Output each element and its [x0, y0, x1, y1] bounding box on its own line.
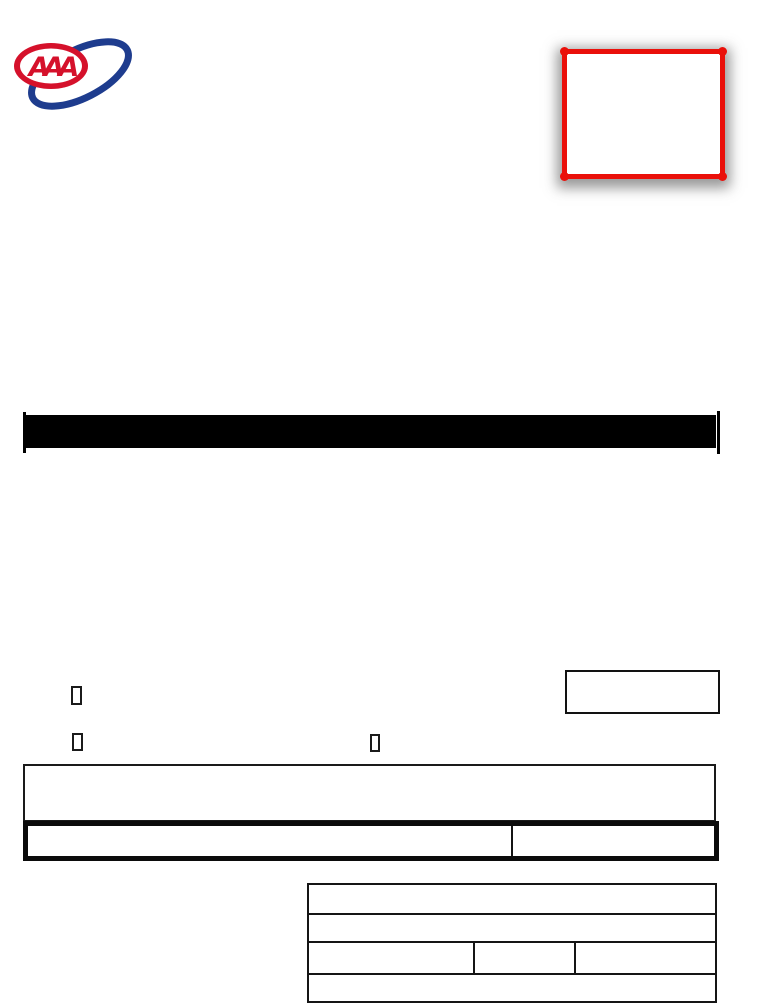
summary-cell-right[interactable] [513, 826, 714, 856]
table-row [309, 943, 715, 975]
notes-box-value [25, 766, 714, 820]
table-row [309, 885, 715, 915]
stamp-box-corner-dot [560, 172, 569, 181]
stamp-box-corner-dot [718, 172, 727, 181]
response-box-value [567, 672, 718, 712]
detail-cell-r3c3[interactable] [576, 943, 715, 973]
stamp-box-corner-dot [560, 47, 569, 56]
stamp-box-corner-dot [718, 47, 727, 56]
checkbox-1[interactable] [71, 686, 82, 705]
detail-cell-r3c2[interactable] [475, 943, 576, 973]
table-row [309, 975, 715, 1001]
form-page: { "logo": { "label": "AAA", "oval_color"… [0, 0, 757, 1003]
stamp-box-value [567, 54, 720, 174]
aaa-logo-letters: AAA [27, 52, 78, 83]
detail-cell-r3c1[interactable] [309, 943, 475, 973]
summary-cell-left[interactable] [28, 826, 513, 856]
detail-table [307, 883, 717, 1003]
detail-cell-r4c1[interactable] [309, 975, 715, 1001]
notes-box[interactable] [23, 764, 716, 822]
summary-table [23, 821, 719, 861]
table-row [309, 915, 715, 943]
detail-cell-r2c1[interactable] [309, 915, 715, 941]
checkbox-3[interactable] [370, 734, 380, 752]
divider-bar-right-cap [717, 411, 720, 454]
checkbox-2[interactable] [72, 733, 83, 751]
aaa-logo-icon: AAA [8, 34, 136, 114]
divider-bar [25, 415, 716, 448]
detail-cell-r1c1[interactable] [309, 885, 715, 913]
response-box[interactable] [565, 670, 720, 714]
stamp-box[interactable] [562, 49, 725, 179]
